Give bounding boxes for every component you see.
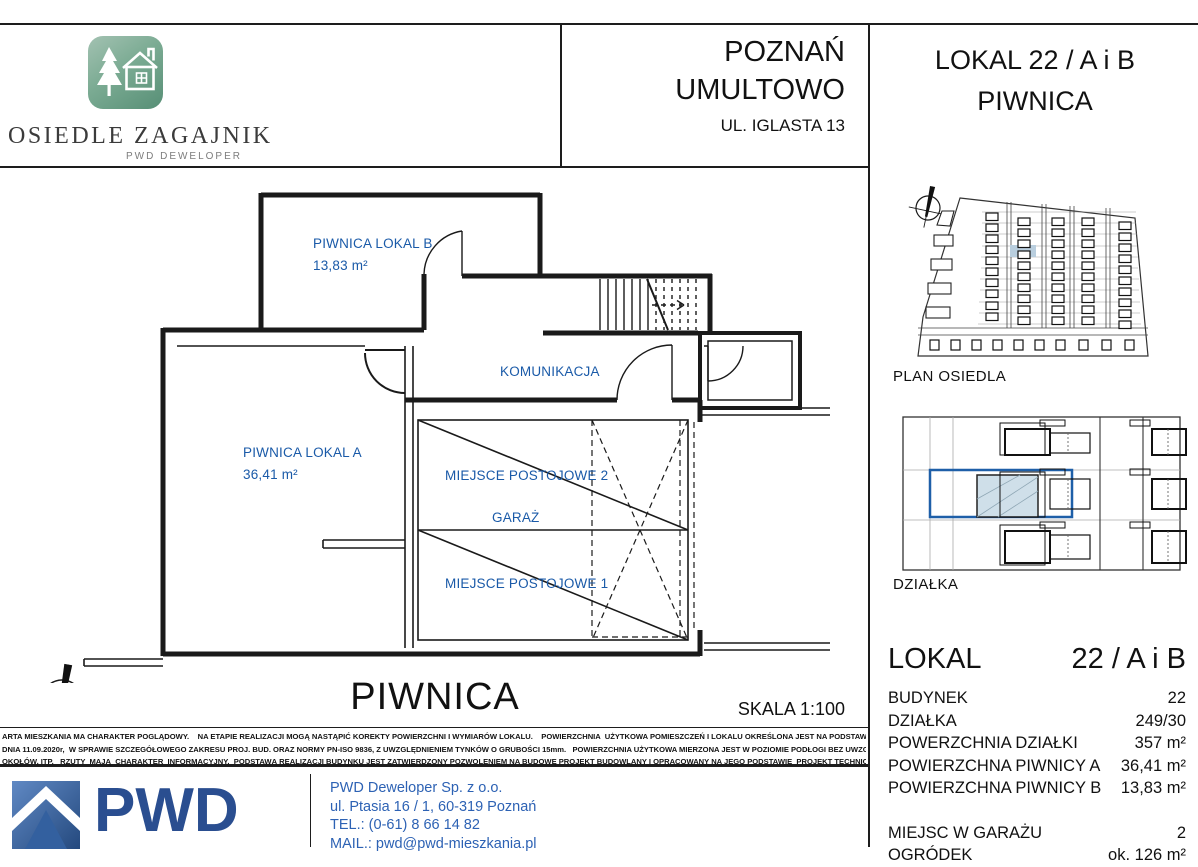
disclaimer-block: ARTA MIESZKANIA MA CHARAKTER POGLĄDOWY. …	[2, 731, 866, 769]
disclaimer-line: ARTA MIESZKANIA MA CHARAKTER POGLĄDOWY. …	[2, 731, 866, 744]
row-label: DZIAŁKA	[888, 710, 957, 733]
table-row: DZIAŁKA 249/30	[888, 710, 1186, 733]
site-plan-drawing	[890, 178, 1190, 373]
lokal-heading-row: LOKAL 22 / A i B	[888, 643, 1186, 676]
lokal-heading: LOKAL	[888, 643, 982, 676]
table-row: OGRÓDEK ok. 126 m²	[888, 844, 1186, 867]
top-border-line	[0, 23, 1198, 25]
row-label: MIEJSC W GARAŻU	[888, 822, 1042, 845]
contact-block: PWD Deweloper Sp. z o.o. ul. Ptasia 16 /…	[330, 779, 537, 853]
table-row: POWIERZCHNA PIWNICY A 36,41 m²	[888, 755, 1186, 778]
detail-table: BUDYNEK 22 DZIAŁKA 249/30 POWERZCHNIA DZ…	[888, 687, 1186, 867]
estate-logo	[88, 36, 163, 109]
disclaimer-top-line	[0, 727, 868, 728]
row-value: 357 m²	[1135, 732, 1186, 755]
scale-label: SKALA 1:100	[705, 699, 845, 720]
table-row: POWERZCHNIA DZIAŁKI 357 m²	[888, 732, 1186, 755]
plot-plan-drawing	[890, 403, 1190, 578]
room-label-parking-2: MIEJSCE POSTOJOWE 2	[445, 468, 608, 483]
site-plan-label: PLAN OSIEDLA	[893, 368, 1006, 385]
row-value: ok. 126 m²	[1108, 844, 1186, 867]
project-name: OSIEDLE ZAGAJNIK	[8, 123, 258, 150]
room-label-piwnica-b: PIWNICA LOKAL B	[313, 236, 433, 251]
footer-divider	[310, 774, 311, 847]
company-name: PWD Deweloper Sp. z o.o.	[330, 779, 537, 798]
table-row: POWIERZCHNA PIWNICY B 13,83 m²	[888, 777, 1186, 800]
street-label: UL. IGLASTA 13	[565, 116, 845, 136]
header-mid-divider	[560, 23, 562, 166]
floor-plan-drawing	[0, 178, 870, 683]
row-value: 2	[1177, 822, 1186, 845]
row-value: 22	[1168, 687, 1186, 710]
city-label: POZNAŃ	[565, 33, 845, 71]
row-label: OGRÓDEK	[888, 844, 972, 867]
company-email: MAIL.: pwd@pwd-mieszkania.pl	[330, 835, 537, 854]
disclaimer-line: OKOŁÓW, ITP. RZUTY MAJĄ CHARAKTER INFORM…	[2, 756, 866, 769]
lokal-value: 22 / A i B	[1072, 643, 1186, 676]
row-value: 36,41 m²	[1121, 755, 1186, 778]
row-label: POWERZCHNIA DZIAŁKI	[888, 732, 1078, 755]
row-value: 13,83 m²	[1121, 777, 1186, 800]
unit-header: LOKAL 22 / A i B PIWNICA	[872, 40, 1198, 122]
room-area-piwnica-a: 36,41 m²	[243, 467, 298, 482]
room-label-parking-1: MIEJSCE POSTOJOWE 1	[445, 576, 608, 591]
unit-subtitle: PIWNICA	[872, 80, 1198, 122]
company-phone: TEL.: (0-61) 8 66 14 82	[330, 816, 537, 835]
room-label-piwnica-a: PIWNICA LOKAL A	[243, 445, 362, 460]
plot-label: DZIAŁKA	[893, 576, 958, 593]
room-label-komunikacja: KOMUNIKACJA	[500, 364, 600, 379]
company-address: ul. Ptasia 16 / 1, 60-319 Poznań	[330, 798, 537, 817]
pwd-logo-icon	[12, 781, 80, 849]
location-block: POZNAŃ UMULTOWO UL. IGLASTA 13	[565, 33, 845, 136]
header-bottom-line	[0, 166, 869, 168]
disclaimer-line: DNIA 11.09.2020r, W SPRAWIE SZCZEGÓŁOWEG…	[2, 744, 866, 757]
tree-house-icon	[88, 36, 163, 109]
table-row: BUDYNEK 22	[888, 687, 1186, 710]
unit-title: LOKAL 22 / A i B	[872, 40, 1198, 80]
row-label: BUDYNEK	[888, 687, 968, 710]
district-label: UMULTOWO	[565, 71, 845, 109]
project-subtitle: PWD DEWELOPER	[20, 151, 242, 162]
row-value: 249/30	[1136, 710, 1186, 733]
pwd-logo-text: PWD	[94, 776, 239, 846]
row-label: POWIERZCHNA PIWNICY B	[888, 777, 1101, 800]
row-label: POWIERZCHNA PIWNICY A	[888, 755, 1100, 778]
room-area-piwnica-b: 13,83 m²	[313, 258, 368, 273]
table-row: MIEJSC W GARAŻU 2	[888, 822, 1186, 845]
room-label-garaz: GARAŻ	[492, 510, 540, 525]
